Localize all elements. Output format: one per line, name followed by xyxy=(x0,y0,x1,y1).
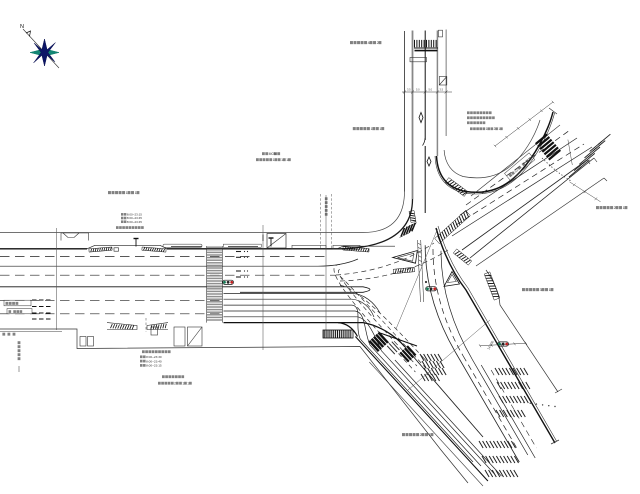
svg-text:1: 1 xyxy=(135,191,137,195)
svg-text:1: 1 xyxy=(286,158,288,162)
svg-text:3: 3 xyxy=(540,288,542,292)
svg-text:1: 1 xyxy=(429,433,431,437)
svg-text:4: 4 xyxy=(368,41,370,45)
svg-text:N: N xyxy=(20,24,24,30)
svg-text:2: 2 xyxy=(174,382,176,386)
svg-text:1: 1 xyxy=(623,206,625,210)
svg-text:8:00~23:15: 8:00~23:15 xyxy=(146,364,162,368)
svg-text:3.5: 3.5 xyxy=(407,88,411,92)
svg-text:3.5: 3.5 xyxy=(440,88,444,92)
svg-text:1: 1 xyxy=(281,158,283,162)
svg-text:5.0: 5.0 xyxy=(416,88,420,92)
svg-text:1: 1 xyxy=(549,288,551,292)
svg-text:1: 1 xyxy=(187,382,189,386)
svg-text:2: 2 xyxy=(614,206,616,210)
svg-text:5.0: 5.0 xyxy=(429,88,433,92)
svg-text:1: 1 xyxy=(379,127,381,131)
svg-text:8:00~23:45: 8:00~23:45 xyxy=(127,220,142,224)
svg-text:1: 1 xyxy=(126,191,128,195)
svg-text:1: 1 xyxy=(370,127,372,131)
svg-text:2: 2 xyxy=(420,433,422,437)
svg-text:1: 1 xyxy=(273,158,275,162)
svg-text:2: 2 xyxy=(377,41,379,45)
svg-text:1: 1 xyxy=(182,382,184,386)
